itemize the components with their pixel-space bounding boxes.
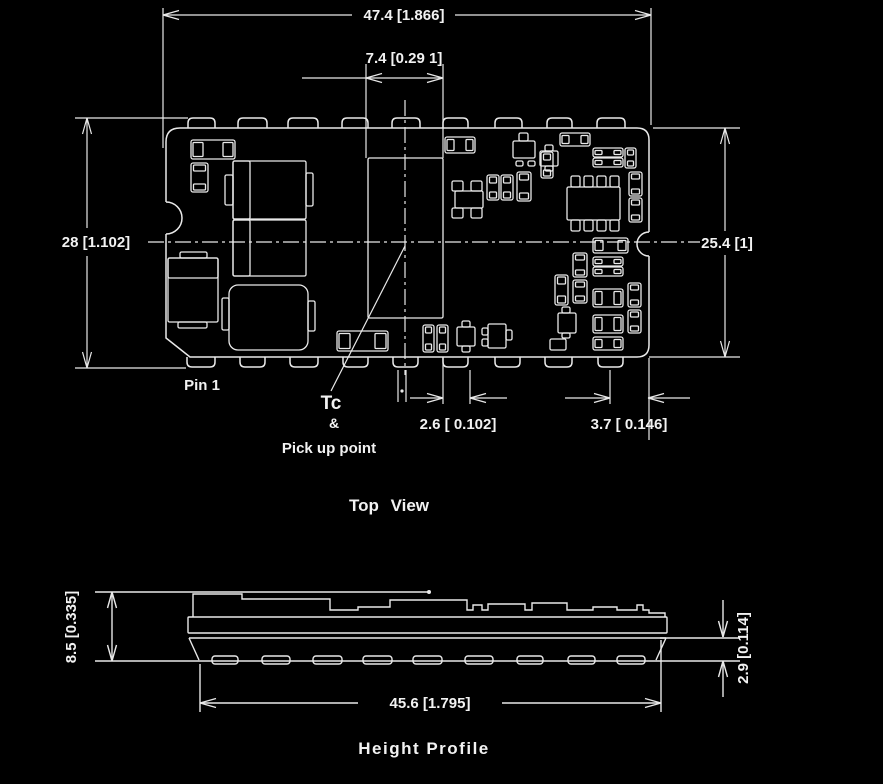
arrowhead [163,15,179,20]
component-cap [440,344,446,350]
component-cap [440,327,446,333]
chip-component [593,257,623,266]
component-cap [595,318,602,331]
component-cap [193,143,203,157]
component-cap [595,340,602,348]
component-cap [223,143,233,157]
component-cap [614,340,621,348]
chip-component [597,220,606,231]
component-cap [631,285,639,290]
pin-tab [290,357,318,367]
component-skyline [193,594,665,617]
height-profile-drawing [95,590,740,712]
component-cap [339,334,350,349]
chip-component [233,220,250,276]
component-cap [194,165,206,171]
pin-tab [188,118,215,128]
dim-pin-width: 2.6 [ 0.102] [420,416,497,433]
chip-component [462,321,470,327]
component-cap [426,344,432,350]
component-cap [631,312,639,317]
component-cap [447,140,454,151]
pin-tab [547,118,572,128]
pcb-slab [188,617,667,633]
component-cap [581,136,588,144]
component-cap [576,255,585,260]
chip-component [584,176,593,187]
arrowhead [635,11,651,16]
chip-component [528,161,535,166]
arrowhead [427,394,443,399]
arrowhead [470,398,486,403]
chip-component [550,339,566,350]
chip-component [571,176,580,187]
chip-component [516,161,523,166]
pin-tab [545,357,572,367]
arrowhead [648,398,664,403]
component-cap [375,334,386,349]
component-cap [628,161,634,166]
component-cap [490,177,497,183]
chip-component [229,285,308,350]
dim-pin-edge-offset: 3.7 [ 0.146] [591,416,668,433]
pin1-label: Pin 1 [184,377,220,394]
component-cap [632,189,640,194]
height-profile-title: Height Profile [358,739,490,758]
top-view-title: Top View [349,496,430,515]
component-cap [504,177,511,183]
pin-tab [392,118,420,128]
component-cap [576,270,585,275]
arrowhead [594,394,610,399]
component-cap [631,326,639,331]
chip-component [423,325,434,352]
dim-total-height: 8.5 [0.335] [63,591,80,664]
solder-pad [413,656,442,664]
chip-component [437,325,448,352]
chip-component [610,220,619,231]
arrowhead [83,118,88,134]
component-cap [632,200,640,205]
component-cap [614,292,621,305]
component-cap [490,192,497,198]
pin-tab [443,118,468,128]
pin-tab [597,118,625,128]
component-cap [558,277,566,284]
component-cap [614,260,621,264]
solder-pad [212,656,238,664]
component-cap [426,327,432,333]
chip-component [452,181,463,191]
chip-component [610,176,619,187]
arrowhead [87,352,92,368]
chip-component [225,175,233,205]
solder-pad [568,656,595,664]
chip-component [541,152,553,178]
component-cap [558,296,566,303]
arrowhead [366,74,382,79]
solder-pad [262,656,290,664]
chip-component [471,208,482,218]
chip-component [571,220,580,231]
arrowhead [648,394,664,399]
dim-board-height: 25.4 [1] [701,235,753,252]
component-cap [631,300,639,305]
chip-component [308,301,315,331]
chip-component [501,175,513,200]
pickup-point-label: Pick up point [282,440,376,457]
solder-pad [363,656,392,664]
chip-component [180,252,207,258]
dim-body-length: 45.6 [1.795] [390,695,471,712]
arrowhead [427,74,443,79]
chip-component [233,220,306,276]
pin-tab [495,118,522,128]
pin-tab [342,118,368,128]
component-cap [544,154,551,160]
chip-component [168,258,218,278]
dim-board-width: 47.4 [1.866] [364,7,445,24]
component-cap [614,151,621,155]
chip-component [562,333,570,338]
mechanical-drawing: 47.4 [1.866] 7.4 [0.29 1] 28 [1.102] 25.… [0,0,883,784]
chip-component [593,267,623,276]
chip-component [462,346,470,352]
dimension-lines [75,8,740,440]
pin-tab [443,357,468,367]
chip-component [567,187,620,220]
reference-dot [427,590,431,594]
chip-component [455,191,483,208]
pin-tab [238,118,267,128]
component-cap [595,260,602,264]
arrowhead [83,352,88,368]
component-cap [632,215,640,220]
tc-label: Tc [321,393,342,414]
right-edge-notch [637,232,649,256]
dim-center-width: 7.4 [0.29 1] [366,50,443,67]
ampersand-label: & [329,415,339,431]
profile-line [189,638,199,660]
chip-component [558,313,576,333]
arrowhead [594,398,610,403]
component-cap [614,161,621,165]
chip-component [471,181,482,191]
chip-component [452,208,463,218]
solder-pad [517,656,543,664]
component-cap [614,318,621,331]
pin-tab [343,357,368,367]
component-cap [595,270,602,274]
dim-standoff-height: 2.9 [0.114] [735,612,752,684]
pin-tab [240,357,265,367]
chip-component [593,158,623,167]
chip-component [545,145,553,151]
chip-component [513,141,535,158]
component-cap [504,192,511,198]
component-cap [595,292,602,305]
solder-pad [313,656,342,664]
chip-component [233,161,250,219]
chip-component [233,161,306,219]
arrowhead [163,11,179,16]
chip-component [625,148,636,168]
chip-component [562,307,570,313]
component-cap [576,282,585,287]
arrowhead [725,341,730,357]
component-cap [595,161,602,165]
chip-component [488,324,506,348]
chip-component [597,176,606,187]
pin-tab [495,357,520,367]
pin-tab [288,118,318,128]
arrowhead [725,128,730,144]
component-cap [194,184,206,190]
arrowhead [470,394,486,399]
component-cap [628,150,634,155]
chip-component [519,133,528,141]
chip-component [222,298,229,330]
component-cap [576,296,585,301]
chip-component [593,148,623,157]
reference-dot [400,389,403,392]
chip-component [482,339,488,346]
component-cap [466,140,473,151]
chip-component [178,322,207,328]
pin-tab [187,357,215,367]
dim-overall-height: 28 [1.102] [62,234,130,251]
component-cap [562,136,569,144]
left-edge-notch [166,202,182,234]
component-cap [595,151,602,155]
chip-component [540,151,558,166]
solder-pad [617,656,645,664]
chip-component [482,328,488,335]
chip-component [457,327,475,346]
chip-component [584,220,593,231]
pin-tab [598,357,623,367]
arrowhead [427,78,443,83]
arrowhead [427,398,443,403]
arrowhead [721,341,726,357]
component-cap [614,270,621,274]
chip-component [306,173,313,206]
arrowhead [366,78,382,83]
arrowhead [635,15,651,20]
chip-component [168,258,218,322]
component-cap [632,174,640,179]
arrowhead [87,118,92,134]
solder-pad [465,656,493,664]
arrowhead [721,128,726,144]
chip-component [487,175,499,200]
component-cap [520,193,529,199]
chip-component [506,330,512,340]
component-cap [520,174,529,180]
